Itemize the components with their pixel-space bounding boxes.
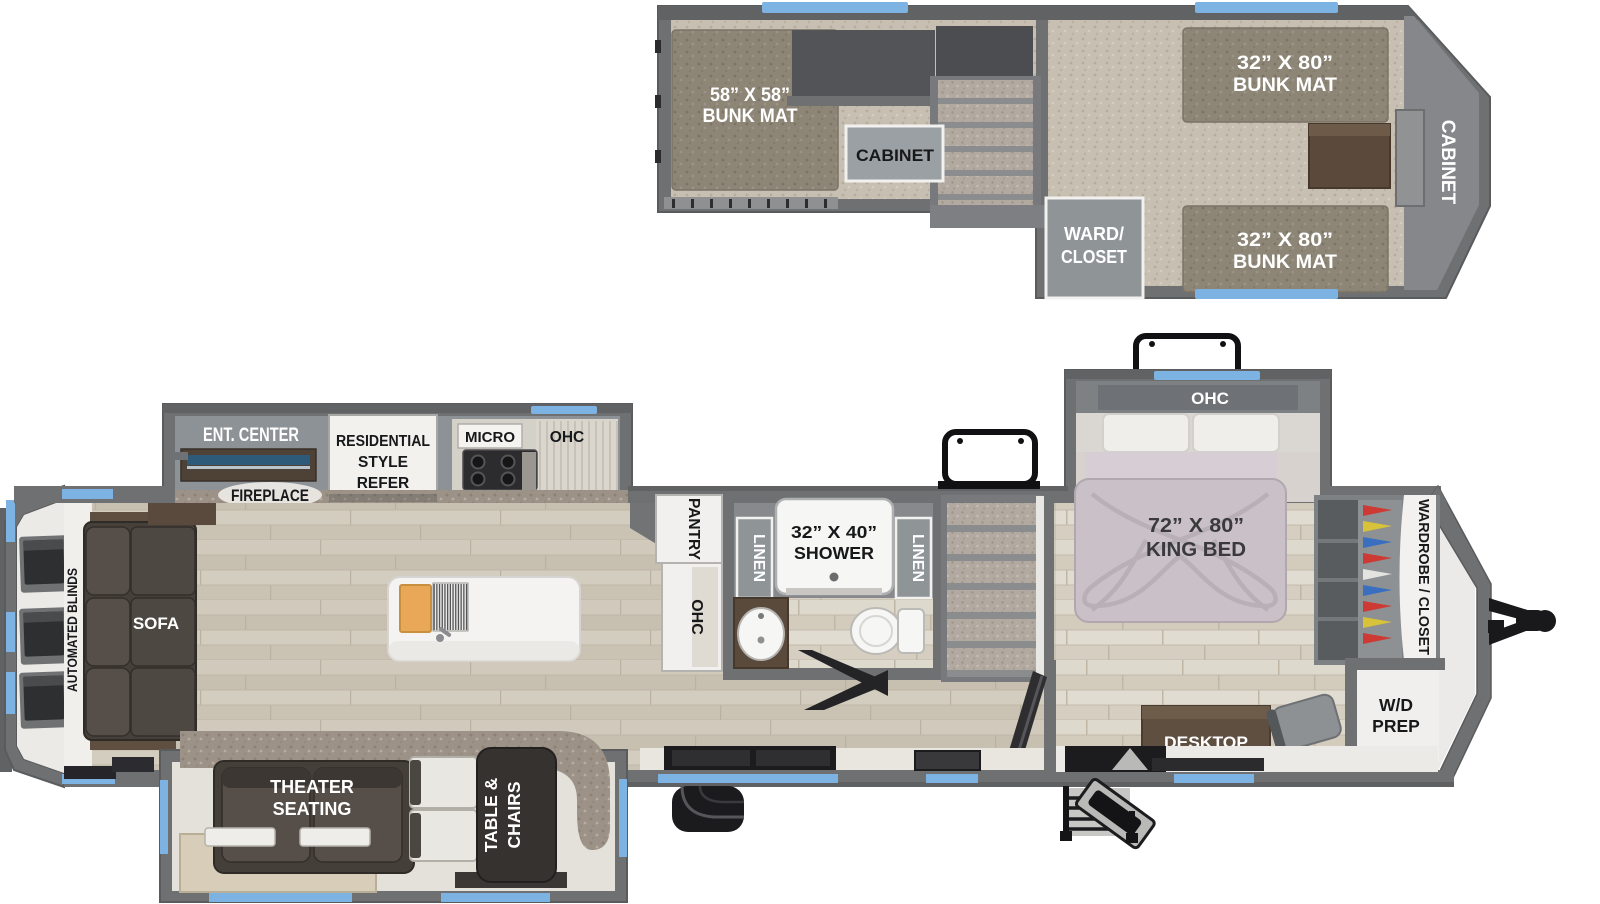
svg-text:REFER: REFER — [357, 475, 410, 492]
svg-text:BUNK MAT: BUNK MAT — [1233, 251, 1337, 273]
svg-text:CABINET: CABINET — [1437, 120, 1458, 205]
svg-text:ENT. CENTER: ENT. CENTER — [203, 425, 299, 446]
svg-text:KING BED: KING BED — [1146, 539, 1246, 561]
svg-text:STYLE: STYLE — [358, 454, 408, 471]
svg-text:CLOSET: CLOSET — [1061, 247, 1127, 267]
svg-text:AUTOMATED BLINDS: AUTOMATED BLINDS — [64, 568, 80, 692]
svg-text:WARDROBE / CLOSET: WARDROBE / CLOSET — [1415, 499, 1432, 655]
svg-text:72” X 80”: 72” X 80” — [1148, 515, 1244, 537]
svg-text:MICRO: MICRO — [465, 429, 515, 446]
svg-text:OHC: OHC — [688, 599, 705, 635]
svg-text:PANTRY: PANTRY — [685, 498, 702, 561]
svg-text:32” X 80”: 32” X 80” — [1237, 229, 1333, 251]
svg-text:W/D: W/D — [1379, 695, 1413, 715]
svg-text:CHAIRS: CHAIRS — [504, 781, 524, 848]
svg-text:BUNK MAT: BUNK MAT — [703, 106, 798, 127]
svg-text:FIREPLACE: FIREPLACE — [231, 487, 309, 505]
svg-text:BUNK MAT: BUNK MAT — [1233, 74, 1337, 96]
svg-text:SEATING: SEATING — [273, 799, 352, 819]
svg-text:WARD/: WARD/ — [1064, 224, 1124, 244]
svg-text:58” X 58”: 58” X 58” — [710, 85, 790, 106]
svg-text:RESIDENTIAL: RESIDENTIAL — [336, 433, 430, 450]
svg-text:LINEN: LINEN — [750, 534, 767, 582]
svg-text:SOFA: SOFA — [133, 614, 179, 633]
svg-text:OHC: OHC — [550, 429, 584, 446]
svg-text:32” X 40”: 32” X 40” — [791, 522, 877, 542]
svg-text:PREP: PREP — [1372, 716, 1420, 736]
svg-text:32” X 80”: 32” X 80” — [1237, 52, 1333, 74]
svg-text:TABLE &: TABLE & — [481, 777, 501, 852]
svg-text:SHOWER: SHOWER — [794, 543, 874, 563]
svg-text:OHC: OHC — [1191, 389, 1229, 408]
svg-text:LINEN: LINEN — [909, 534, 926, 582]
svg-text:THEATER: THEATER — [270, 777, 354, 797]
svg-text:CABINET: CABINET — [856, 146, 935, 165]
